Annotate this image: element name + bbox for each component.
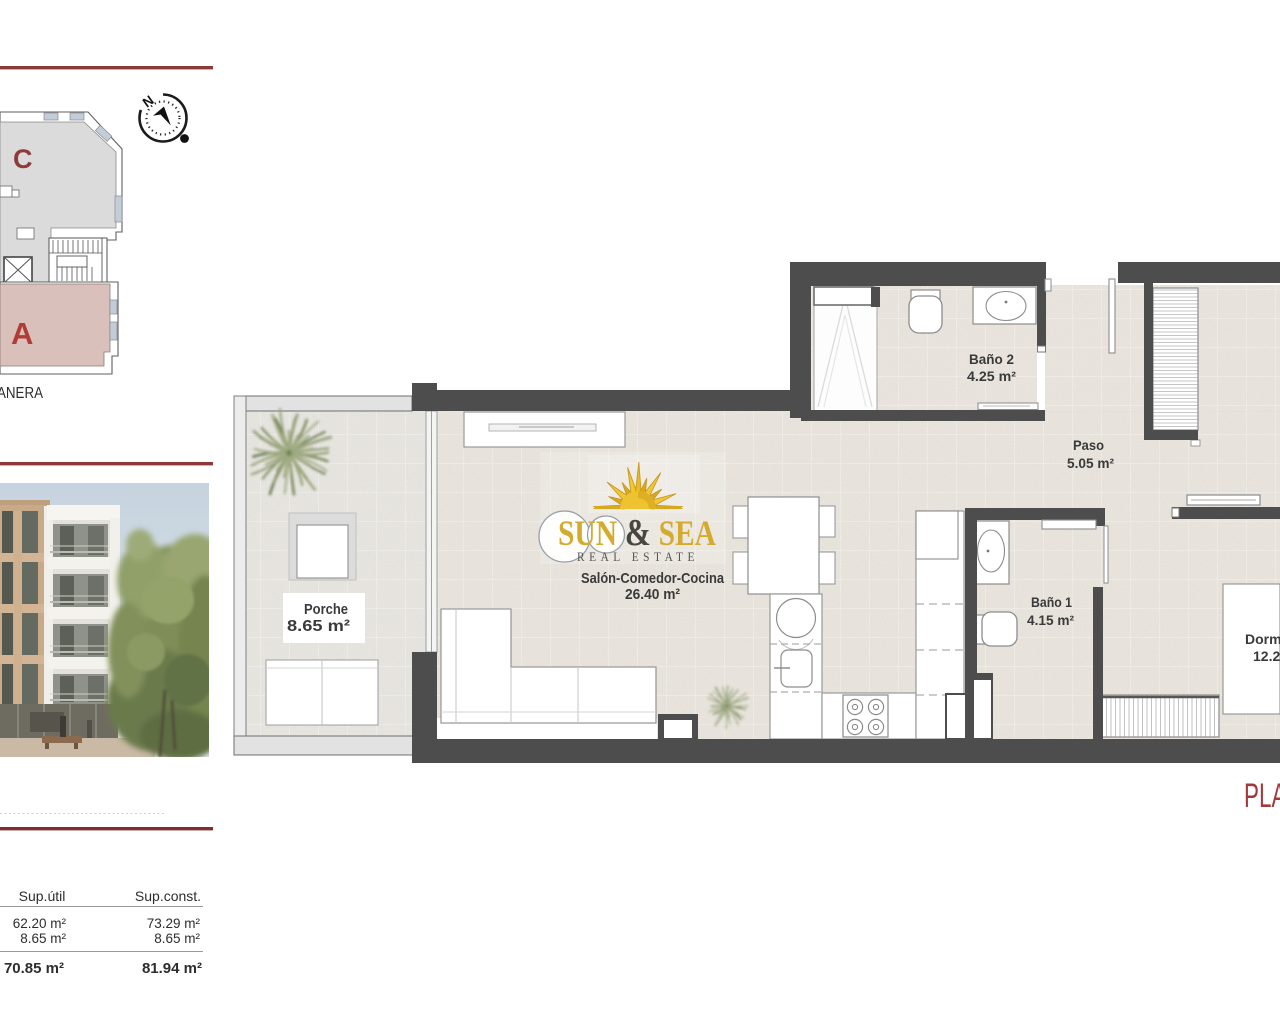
svg-text:REAL ESTATE: REAL ESTATE: [577, 550, 699, 564]
svg-text:5.05 m²: 5.05 m²: [1067, 455, 1114, 471]
svg-text:8.65 m²: 8.65 m²: [154, 931, 200, 946]
svg-text:Sup.útil: Sup.útil: [19, 888, 66, 904]
svg-text:26.40 m²: 26.40 m²: [625, 586, 680, 603]
svg-text:62.20 m²: 62.20 m²: [13, 916, 67, 931]
svg-text:8.65 m²: 8.65 m²: [20, 931, 66, 946]
svg-text:12.25 m²: 12.25 m²: [1253, 648, 1280, 664]
svg-text:8.65 m²: 8.65 m²: [287, 618, 350, 635]
svg-text:SUN & SEA: SUN & SEA: [558, 512, 716, 554]
svg-text:81.94 m²: 81.94 m²: [142, 960, 202, 977]
svg-text:ANERA: ANERA: [0, 385, 43, 402]
svg-text:Baño 1: Baño 1: [1031, 594, 1072, 610]
svg-text:Baño 2: Baño 2: [969, 351, 1014, 367]
svg-text:PLANTA PRIMERA: PLANTA PRIMERA: [1244, 777, 1280, 815]
svg-text:4.25 m²: 4.25 m²: [967, 368, 1016, 384]
svg-text:Paso: Paso: [1073, 437, 1104, 453]
svg-text:4.15 m²: 4.15 m²: [1027, 612, 1074, 628]
svg-text:70.85 m²: 70.85 m²: [4, 960, 64, 977]
svg-text:Sup.const.: Sup.const.: [135, 888, 201, 904]
svg-text:A: A: [11, 316, 33, 351]
svg-text:73.29 m²: 73.29 m²: [147, 916, 201, 931]
svg-text:C: C: [13, 144, 33, 174]
svg-text:Porche: Porche: [304, 602, 348, 618]
svg-text:Dormitorio: Dormitorio: [1245, 631, 1280, 647]
svg-text:Salón-Comedor-Cocina: Salón-Comedor-Cocina: [581, 570, 725, 587]
